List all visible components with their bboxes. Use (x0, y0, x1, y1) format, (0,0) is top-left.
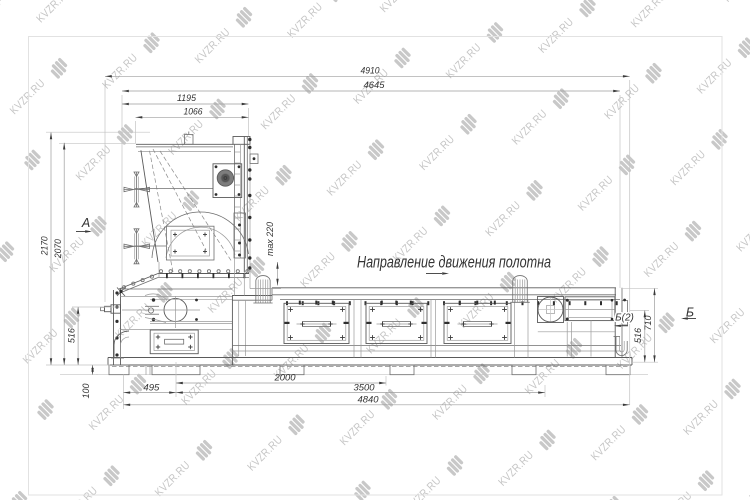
svg-text:А: А (81, 216, 90, 230)
svg-text:Направление движения полотна: Направление движения полотна (357, 254, 551, 272)
svg-text:1195: 1195 (177, 93, 197, 104)
svg-text:4645: 4645 (364, 80, 386, 91)
svg-text:100: 100 (81, 383, 92, 399)
svg-text:710: 710 (643, 315, 654, 331)
svg-text:4910: 4910 (361, 65, 381, 76)
svg-text:2000: 2000 (274, 372, 297, 383)
svg-text:4840: 4840 (358, 394, 380, 405)
svg-text:2070: 2070 (53, 238, 64, 259)
svg-text:Б: Б (686, 306, 694, 320)
svg-text:Б(2): Б(2) (615, 313, 634, 324)
svg-text:495: 495 (143, 382, 160, 393)
svg-text:max 220: max 220 (265, 221, 276, 256)
svg-text:1066: 1066 (184, 106, 204, 117)
svg-text:516: 516 (67, 327, 78, 343)
svg-text:3500: 3500 (354, 382, 376, 393)
svg-text:2170: 2170 (39, 236, 50, 257)
